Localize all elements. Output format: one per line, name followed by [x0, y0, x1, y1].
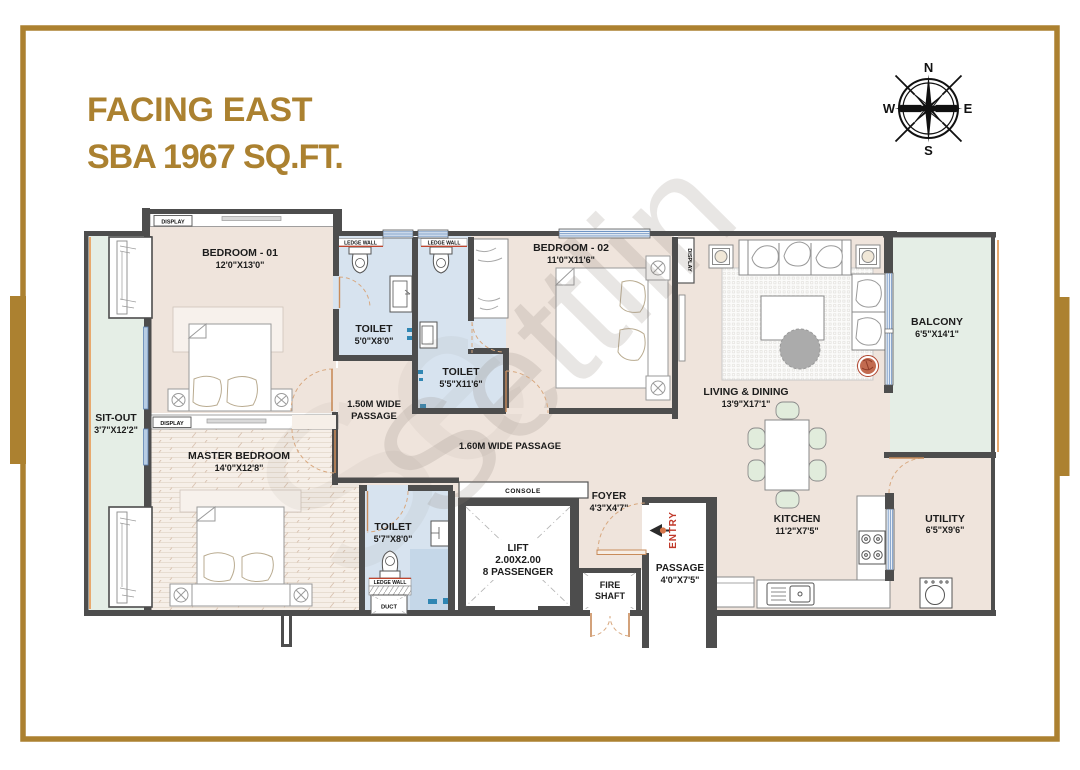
svg-text:BEDROOM - 02: BEDROOM - 02	[533, 242, 609, 254]
svg-text:8 PASSENGER: 8 PASSENGER	[483, 567, 554, 578]
svg-text:2.00X2.00: 2.00X2.00	[495, 555, 541, 566]
svg-text:DISPLAY: DISPLAY	[686, 248, 692, 272]
svg-text:TOILET: TOILET	[442, 366, 480, 378]
svg-text:MASTER BEDROOM: MASTER BEDROOM	[188, 450, 290, 462]
svg-text:12'0"X13'0": 12'0"X13'0"	[216, 260, 265, 270]
svg-text:N: N	[924, 60, 933, 75]
svg-text:DUCT: DUCT	[381, 605, 398, 611]
svg-text:4'0"X7'5": 4'0"X7'5"	[661, 575, 700, 585]
svg-text:LIFT: LIFT	[507, 543, 528, 554]
svg-text:BEDROOM - 01: BEDROOM - 01	[202, 247, 278, 259]
svg-text:LEDGE WALL: LEDGE WALL	[344, 240, 377, 246]
svg-text:PASSAGE: PASSAGE	[656, 563, 704, 574]
svg-text:1.50M WIDE: 1.50M WIDE	[347, 399, 401, 410]
svg-text:3'7"X12'2": 3'7"X12'2"	[94, 425, 138, 435]
svg-text:4'3"X4'7": 4'3"X4'7"	[590, 503, 629, 513]
svg-text:SHAFT: SHAFT	[595, 591, 625, 601]
svg-text:DISPLAY: DISPLAY	[161, 220, 185, 226]
svg-text:11'2"X7'5": 11'2"X7'5"	[775, 526, 818, 536]
svg-text:FACING EAST: FACING EAST	[87, 91, 313, 129]
svg-text:BALCONY: BALCONY	[911, 316, 963, 328]
svg-text:5'7"X8'0": 5'7"X8'0"	[374, 534, 413, 544]
svg-text:6'5"X9'6": 6'5"X9'6"	[926, 525, 965, 535]
svg-text:13'9"X17'1": 13'9"X17'1"	[722, 399, 771, 409]
svg-text:KITCHEN: KITCHEN	[774, 513, 821, 525]
svg-text:LIVING & DINING: LIVING & DINING	[703, 386, 788, 398]
svg-text:LEDGE WALL: LEDGE WALL	[428, 240, 461, 246]
svg-text:PASSAGE: PASSAGE	[351, 411, 397, 422]
svg-text:DISPLAY: DISPLAY	[160, 421, 184, 427]
svg-text:TOILET: TOILET	[374, 521, 412, 533]
svg-text:FOYER: FOYER	[592, 491, 627, 502]
svg-text:S: S	[924, 143, 933, 158]
svg-text:14'0"X12'8": 14'0"X12'8"	[215, 463, 264, 473]
svg-text:5'0"X8'0": 5'0"X8'0"	[355, 336, 394, 346]
svg-text:11'0"X11'6": 11'0"X11'6"	[547, 255, 595, 265]
svg-text:5'5"X11'6": 5'5"X11'6"	[439, 379, 482, 389]
svg-text:6'5"X14'1": 6'5"X14'1"	[915, 329, 959, 339]
svg-text:UTILITY: UTILITY	[925, 513, 965, 525]
svg-text:FIRE: FIRE	[600, 580, 621, 590]
svg-text:ENTRY: ENTRY	[668, 511, 679, 549]
svg-text:TOILET: TOILET	[355, 323, 393, 335]
svg-text:SBA 1967 SQ.FT.: SBA 1967 SQ.FT.	[87, 138, 343, 176]
svg-text:SIT-OUT: SIT-OUT	[95, 412, 137, 424]
svg-text:W: W	[883, 101, 896, 116]
svg-text:1.60M WIDE PASSAGE: 1.60M WIDE PASSAGE	[459, 441, 561, 452]
svg-text:E: E	[964, 101, 973, 116]
